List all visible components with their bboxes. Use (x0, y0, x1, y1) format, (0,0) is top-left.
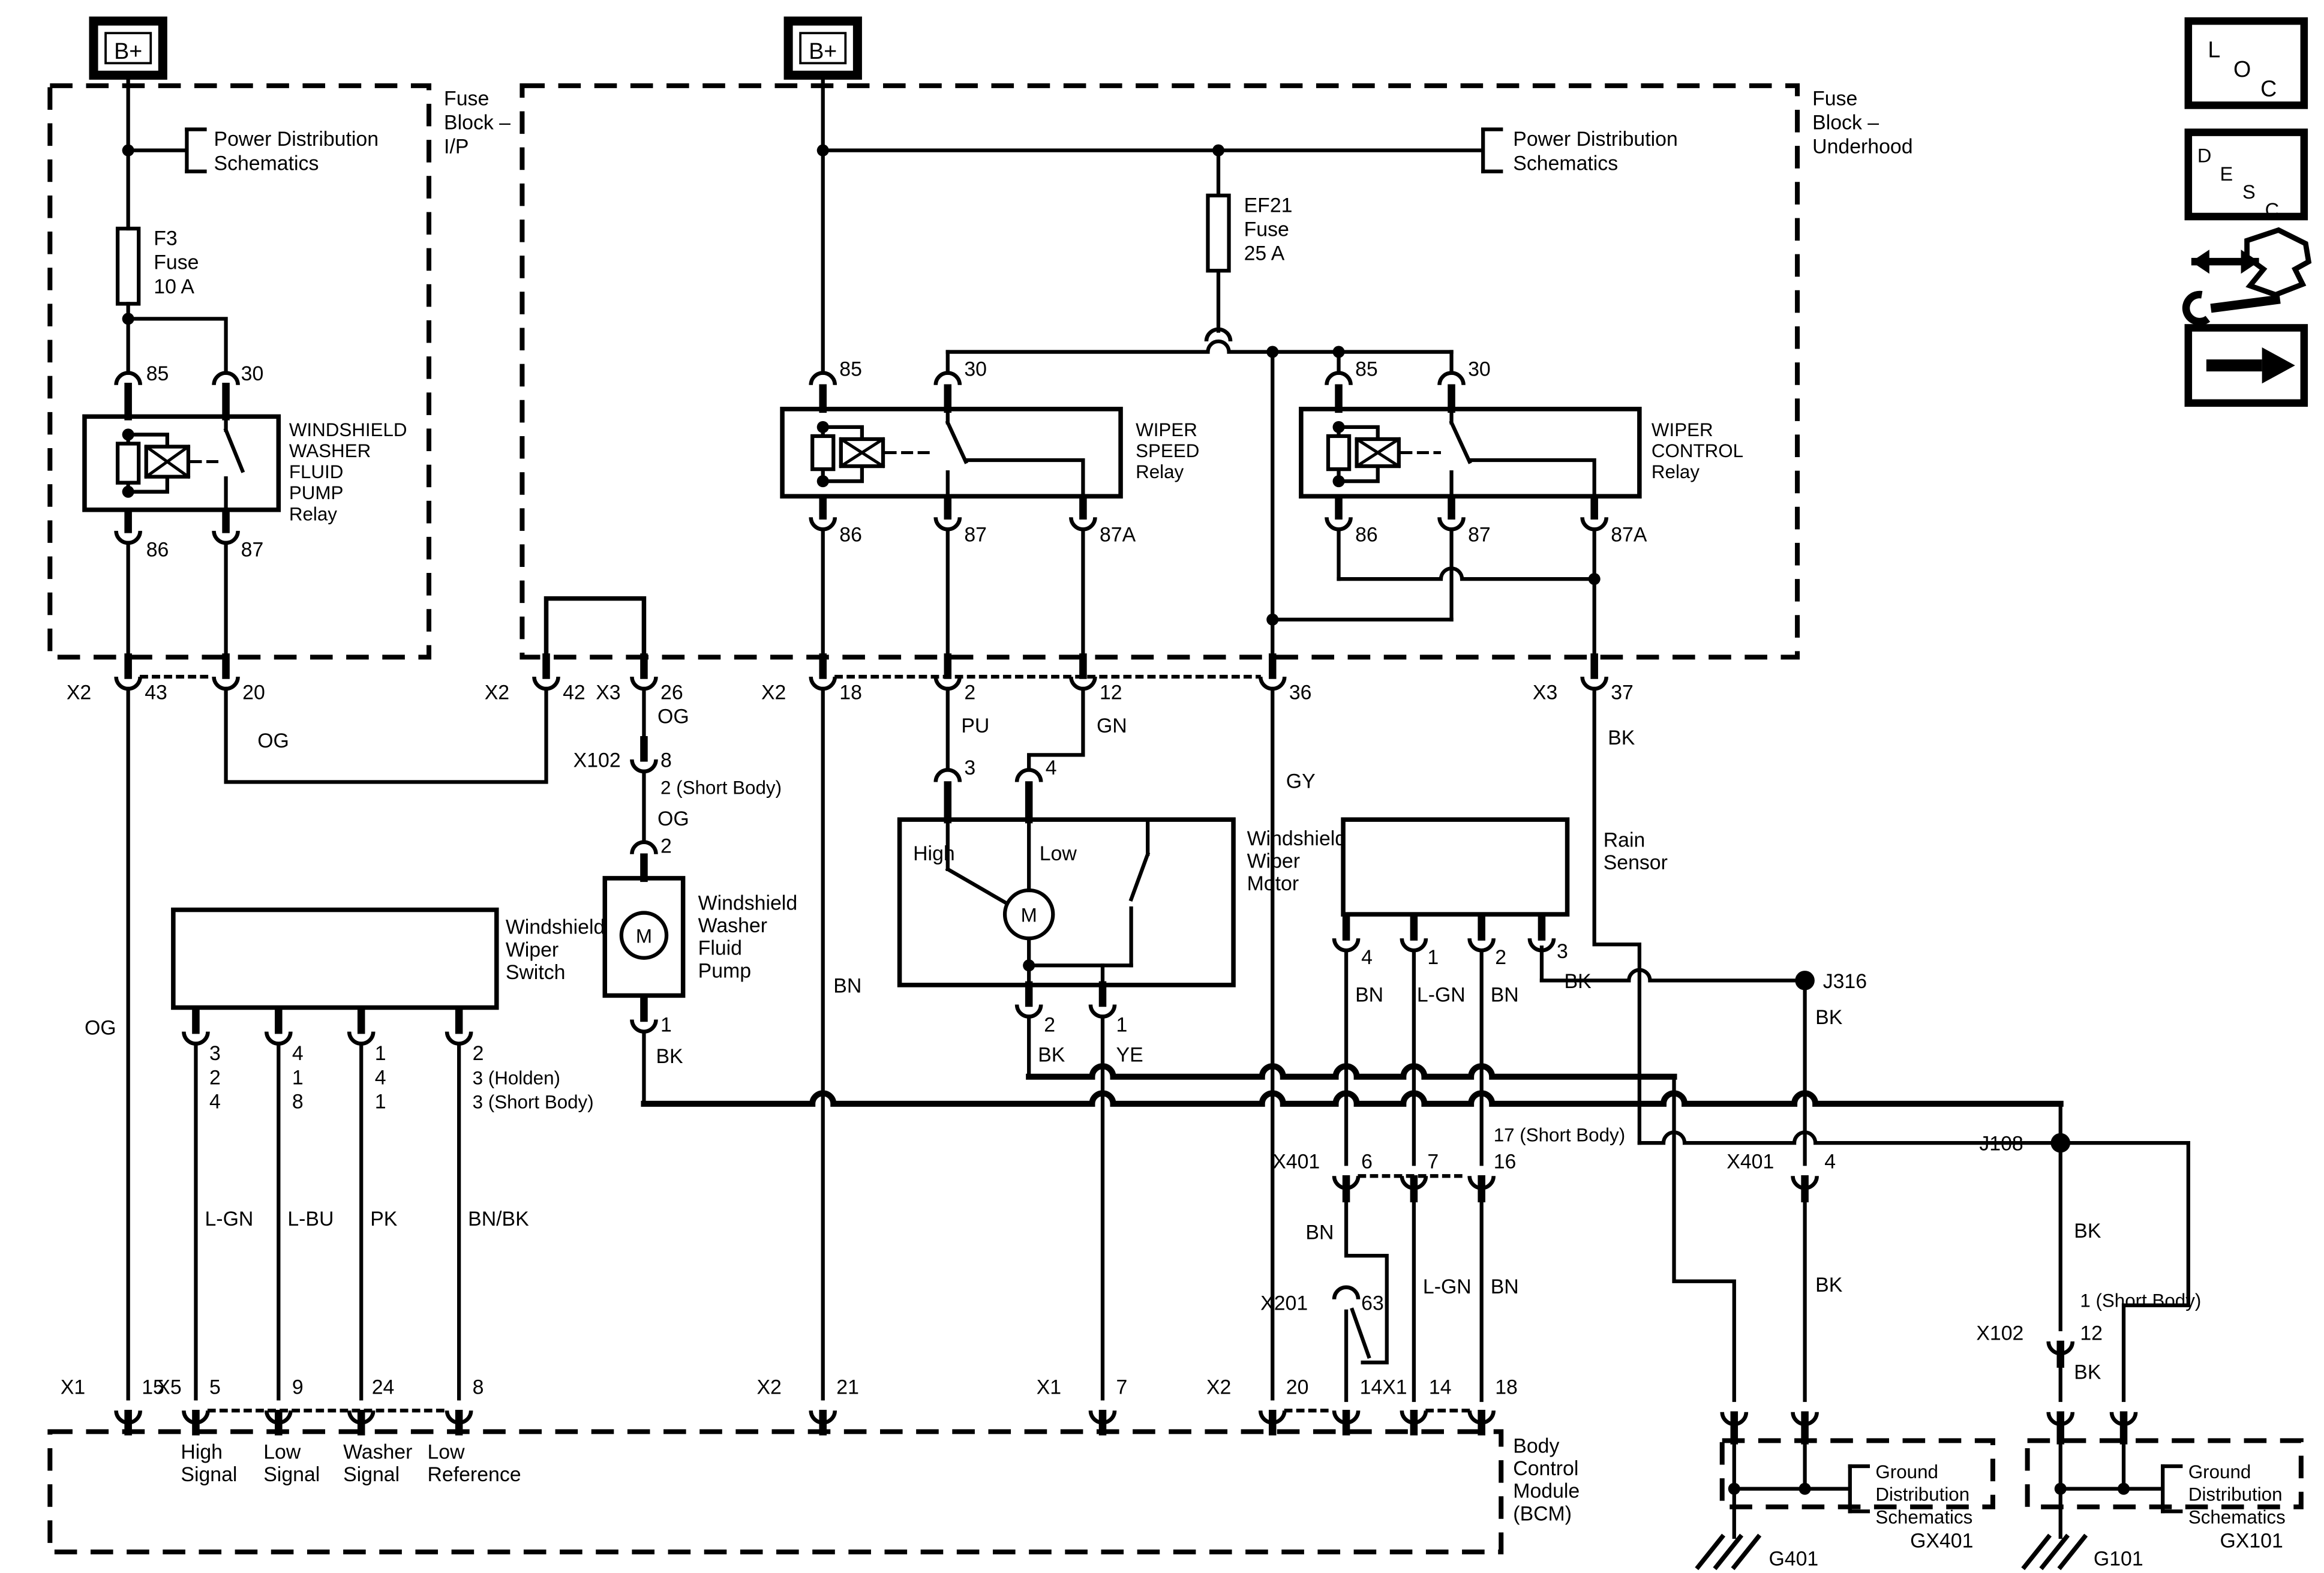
label-1: 1 (660, 1014, 672, 1037)
connector-pin (811, 373, 835, 385)
label-block: Block – (1812, 112, 1879, 134)
label-block: Block – (444, 112, 511, 134)
junction-dot (1333, 421, 1345, 433)
junction-dot (1589, 573, 1601, 585)
motor-m-label: M (1021, 905, 1037, 926)
junction-dot (122, 428, 134, 440)
label-8: 8 (660, 749, 672, 772)
wire (966, 460, 1083, 496)
label-signal: Signal (343, 1463, 400, 1486)
connector-pin (632, 842, 656, 854)
label-pu: PU (961, 715, 989, 737)
label-63: 63 (1361, 1292, 1384, 1314)
label-bk: BK (2074, 1361, 2101, 1384)
label-og: OG (657, 807, 689, 830)
label-bk: BK (656, 1045, 683, 1068)
label-windshield: Windshield (506, 916, 605, 939)
junction-dot (1212, 145, 1224, 157)
label-g401: G401 (1768, 1547, 1818, 1570)
label-1-short-body: 1 (Short Body) (2080, 1290, 2201, 1311)
label-bk: BK (1815, 1006, 1843, 1029)
label-sensor: Sensor (1604, 851, 1668, 874)
label-4: 4 (1361, 946, 1373, 969)
label-1: 1 (375, 1090, 386, 1113)
label-x1: X1 (1037, 1376, 1061, 1399)
arrow-icon (2262, 347, 2295, 383)
label-og: OG (257, 730, 289, 752)
label-x5: X5 (157, 1376, 181, 1399)
label-windshield: Windshield (698, 892, 797, 915)
bus-wire (948, 341, 1452, 352)
label-og: OG (657, 706, 689, 728)
label-f3: F3 (154, 227, 177, 250)
label-85: 85 (146, 362, 169, 385)
label-85: 85 (839, 358, 862, 381)
label-pk: PK (370, 1208, 398, 1230)
junction-dot (817, 145, 829, 157)
label-2: 2 (209, 1066, 221, 1089)
label-pump: PUMP (289, 482, 344, 503)
wire (1131, 854, 1148, 899)
wire (948, 422, 966, 461)
relay-coil-resistor (118, 443, 139, 482)
label-x401: X401 (1272, 1151, 1320, 1173)
label-2: 2 (473, 1042, 484, 1065)
wrench-icon (2186, 295, 2208, 322)
label-control: Control (1513, 1457, 1578, 1480)
label-8: 8 (473, 1376, 484, 1399)
label-washer: Washer (698, 914, 767, 937)
label-42: 42 (563, 682, 585, 704)
desc-letter: S (2242, 181, 2256, 203)
label-x2: X2 (1206, 1376, 1231, 1399)
label-gn: GN (1097, 715, 1127, 737)
wire (1352, 1310, 1369, 1356)
label-schematics: Schematics (1513, 152, 1618, 175)
label-bn-bk: BN/BK (468, 1208, 529, 1230)
label-fuse: Fuse (154, 251, 199, 274)
label-5: 5 (209, 1376, 221, 1399)
label-gx401: GX401 (1910, 1529, 1973, 1552)
label-8: 8 (292, 1090, 304, 1113)
wire (1452, 422, 1470, 461)
wire (128, 319, 226, 373)
wiring-diagram-canvas: B+B+FuseBlock –I/PFuseBlock –UnderhoodPo… (0, 0, 2324, 1573)
label-2: 2 (1044, 1014, 1055, 1037)
junction-dot (122, 313, 134, 325)
label-relay: Relay (1652, 461, 1700, 482)
label-distribution: Distribution (1875, 1484, 1969, 1505)
fuse-symbol (1208, 196, 1229, 271)
label-relay: Relay (289, 503, 337, 524)
label-bn: BN (1491, 983, 1519, 1006)
label-2: 2 (1495, 946, 1506, 969)
loc-letter: O (2233, 56, 2251, 82)
label-bn: BN (1305, 1221, 1334, 1244)
wire (2124, 1143, 2188, 1400)
label-7: 7 (1116, 1376, 1128, 1399)
label-windshield: WINDSHIELD (289, 419, 407, 440)
label-wiper: WIPER (1136, 419, 1197, 440)
label-3-holden: 3 (Holden) (473, 1067, 560, 1088)
label-4: 4 (375, 1066, 386, 1089)
label-relay: Relay (1136, 461, 1184, 482)
label-fuse: Fuse (444, 87, 489, 110)
label-x1: X1 (61, 1376, 85, 1399)
connector-pin (1439, 373, 1463, 385)
label-x102: X102 (1976, 1322, 2023, 1344)
connector-pin (1334, 1287, 1358, 1299)
label-bk: BK (2074, 1220, 2101, 1242)
wire (948, 869, 1005, 902)
bplus-terminal-label: B+ (114, 38, 142, 64)
junction-dot (1799, 1483, 1811, 1495)
label-85: 85 (1355, 358, 1378, 381)
label-control: CONTROL (1652, 440, 1743, 461)
desc-letter: E (2220, 163, 2233, 185)
label-gy: GY (1286, 770, 1316, 793)
label-12: 12 (1100, 682, 1122, 704)
label-power-distribution: Power Distribution (1513, 128, 1678, 151)
label-j108: J108 (1979, 1133, 2023, 1155)
wire (1346, 1200, 1387, 1362)
label-x401: X401 (1727, 1151, 1774, 1173)
label-wiper: WIPER (1652, 419, 1713, 440)
double-arrow-icon (2191, 250, 2209, 274)
repair-wrench-button[interactable] (2186, 230, 2308, 322)
label-high: High (913, 842, 955, 865)
label-9: 9 (292, 1376, 304, 1399)
label-low: Low (427, 1440, 465, 1463)
label-switch: Switch (506, 961, 566, 984)
junction-dot (1266, 346, 1278, 358)
label-og: OG (85, 1017, 116, 1040)
label-g101: G101 (2094, 1547, 2143, 1570)
label-gx101: GX101 (2220, 1529, 2283, 1552)
desc-letter: D (2197, 145, 2212, 167)
label-ground: Ground (1875, 1461, 1938, 1482)
loc-letter: L (2208, 37, 2220, 62)
relay-coil-resistor (812, 436, 833, 469)
label-low: Low (263, 1440, 301, 1463)
label-bcm: (BCM) (1513, 1502, 1572, 1525)
label-fluid: Fluid (698, 937, 742, 960)
label-i-p: I/P (444, 136, 469, 158)
label-3: 3 (964, 757, 975, 779)
label-x2: X2 (485, 682, 509, 704)
label-21: 21 (836, 1376, 859, 1399)
label-bk: BK (1038, 1044, 1065, 1067)
label-high: High (181, 1440, 223, 1463)
label-schematics: Schematics (1875, 1506, 1972, 1527)
label-l-gn: L-GN (205, 1208, 253, 1230)
label-module: Module (1513, 1480, 1580, 1503)
label-10-a: 10 A (154, 275, 194, 298)
label-signal: Signal (263, 1463, 320, 1486)
label-4: 4 (292, 1042, 304, 1065)
label-14: 14 (1360, 1376, 1383, 1399)
junction-dot (1333, 346, 1345, 358)
fuse-symbol (118, 229, 139, 304)
label-87: 87 (1468, 523, 1491, 546)
label-x3: X3 (596, 682, 620, 704)
label-2-short-body: 2 (Short Body) (660, 778, 782, 798)
panel-outline-icon (2247, 230, 2309, 295)
label-4: 4 (1824, 1151, 1836, 1173)
label-speed: SPEED (1136, 440, 1199, 461)
label-l-gn: L-GN (1423, 1275, 1472, 1298)
pump-m-label: M (636, 926, 652, 947)
label-bk: BK (1565, 970, 1592, 993)
label-body: Body (1513, 1434, 1559, 1457)
connector-pin (936, 770, 960, 782)
label-x201: X201 (1260, 1292, 1308, 1314)
label-3: 3 (1557, 940, 1568, 963)
label-signal: Signal (181, 1463, 237, 1486)
label-distribution: Distribution (2188, 1484, 2283, 1505)
label-windshield: Windshield (1247, 827, 1346, 850)
rain-sensor-box (1343, 819, 1567, 914)
label-87a: 87A (1100, 523, 1136, 546)
label-fluid: FLUID (289, 461, 344, 482)
label-26: 26 (660, 682, 683, 704)
connector-pin (936, 373, 960, 385)
bus-wire (1339, 569, 1595, 580)
label-20: 20 (1286, 1376, 1309, 1399)
label-x2: X2 (756, 1376, 781, 1399)
label-bn: BN (1355, 983, 1383, 1006)
label-4: 4 (1046, 757, 1057, 779)
label-1: 1 (375, 1042, 386, 1065)
fuseblock-jumper-wire (547, 599, 644, 656)
label-fuse: Fuse (1244, 218, 1289, 241)
wire (1470, 460, 1595, 496)
wire (226, 430, 243, 471)
label-j316: J316 (1823, 970, 1867, 993)
relay-coil-resistor (1328, 436, 1349, 469)
label-2: 2 (660, 834, 672, 857)
label-pump: Pump (698, 959, 751, 982)
label-7: 7 (1427, 1151, 1439, 1173)
splice-j316 (1795, 971, 1815, 990)
label-washer: Washer (343, 1440, 412, 1463)
label-motor: Motor (1247, 872, 1299, 895)
label-25-a: 25 A (1244, 242, 1285, 265)
junction-dot (2118, 1483, 2130, 1495)
label-wiper: Wiper (506, 938, 559, 961)
junction-dot (817, 421, 829, 433)
label-rain: Rain (1604, 828, 1646, 851)
label-x102: X102 (574, 749, 621, 772)
label-86: 86 (1355, 523, 1378, 546)
label-3: 3 (209, 1042, 221, 1065)
label-schematics: Schematics (2188, 1506, 2286, 1527)
wire (1674, 1077, 1734, 1400)
junction-dot (817, 475, 829, 487)
label-36: 36 (1289, 682, 1312, 704)
label-87a: 87A (1611, 523, 1647, 546)
bus-wire (1640, 1133, 2188, 1143)
loc-letter: C (2260, 76, 2277, 101)
label-12: 12 (2080, 1322, 2103, 1344)
label-x2: X2 (761, 682, 786, 704)
splice-j108 (2050, 1133, 2070, 1153)
label-l-bu: L-BU (287, 1208, 334, 1230)
label-washer: WASHER (289, 440, 371, 461)
label-14: 14 (1429, 1376, 1452, 1399)
forward-arrow-button[interactable] (2188, 328, 2304, 403)
label-37: 37 (1611, 682, 1634, 704)
bplus-terminal-label: B+ (809, 38, 837, 64)
label-30: 30 (964, 358, 987, 381)
bus-wire (644, 1093, 2060, 1104)
wiper-control-relay-box (1301, 409, 1640, 496)
label-power-distribution: Power Distribution (214, 128, 379, 151)
label-87: 87 (964, 523, 987, 546)
label-4: 4 (209, 1090, 221, 1113)
label-18: 18 (839, 682, 862, 704)
label-bn: BN (1491, 1275, 1519, 1298)
connector-pin (1017, 770, 1041, 782)
label-87: 87 (241, 538, 264, 561)
label-1: 1 (292, 1066, 304, 1089)
label-2: 2 (964, 682, 975, 704)
label-low: Low (1040, 842, 1077, 865)
label-reference: Reference (427, 1463, 521, 1486)
junction-dot (122, 145, 134, 157)
label-17-short-body: 17 (Short Body) (1494, 1125, 1625, 1146)
label-underhood: Underhood (1812, 136, 1912, 158)
label-x1: X1 (1382, 1376, 1407, 1399)
label-x3: X3 (1533, 682, 1557, 704)
label-fuse: Fuse (1812, 87, 1857, 110)
label-bk: BK (1815, 1274, 1843, 1296)
label-ef21: EF21 (1244, 194, 1293, 217)
label-ye: YE (1116, 1044, 1143, 1067)
label-86: 86 (146, 538, 169, 561)
wiper-switch-box (173, 910, 497, 1008)
label-24: 24 (372, 1376, 395, 1399)
label-l-gn: L-GN (1417, 983, 1466, 1006)
label-ground: Ground (2188, 1461, 2251, 1482)
connector-pin (1326, 373, 1350, 385)
label-1: 1 (1427, 946, 1439, 969)
label-43: 43 (145, 682, 167, 704)
label-3-short-body: 3 (Short Body) (473, 1091, 594, 1112)
label-1: 1 (1116, 1014, 1128, 1037)
junction-dot (1023, 959, 1035, 971)
label-30: 30 (1468, 358, 1491, 381)
bus-wire (1029, 1066, 1674, 1077)
label-18: 18 (1495, 1376, 1518, 1399)
label-16: 16 (1494, 1151, 1517, 1173)
label-30: 30 (241, 362, 264, 385)
label-6: 6 (1361, 1151, 1373, 1173)
desc-letter: C (2265, 199, 2280, 221)
label-86: 86 (839, 523, 862, 546)
junction-dot (1333, 475, 1345, 487)
junction-dot (1728, 1483, 1740, 1495)
junction-dot (2055, 1483, 2067, 1495)
label-bn: BN (833, 974, 861, 997)
label-bk: BK (1608, 727, 1635, 749)
junction-dot (122, 486, 134, 498)
label-20: 20 (242, 682, 265, 704)
junction-dot (1266, 614, 1278, 626)
label-x2: X2 (67, 682, 91, 704)
label-wiper: Wiper (1247, 849, 1300, 872)
label-schematics: Schematics (214, 152, 319, 175)
wrench-icon (2211, 299, 2280, 308)
